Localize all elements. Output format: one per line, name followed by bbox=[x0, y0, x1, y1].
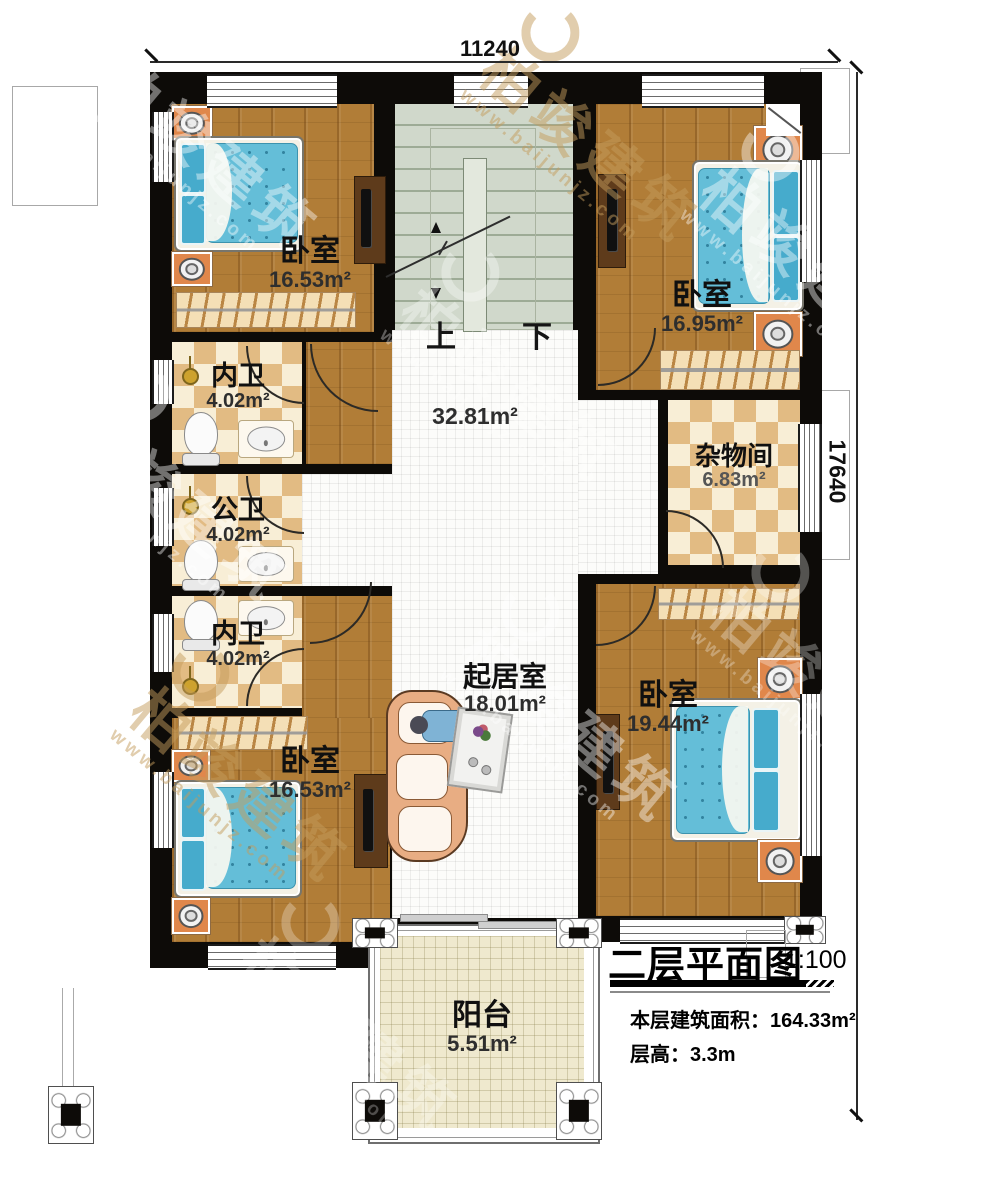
window-left-4 bbox=[152, 614, 174, 672]
label-bedroom-br: 卧室 19.44m² bbox=[598, 680, 738, 736]
sofa-cushion bbox=[396, 754, 448, 800]
room-area: 5.51m² bbox=[382, 1032, 582, 1056]
room-area: 19.44m² bbox=[598, 712, 738, 736]
pillow bbox=[752, 708, 780, 770]
stair-arrow-down bbox=[431, 288, 441, 299]
title-underline-hatch bbox=[806, 980, 834, 987]
toilet-symbol bbox=[184, 412, 218, 456]
hall-band-left bbox=[302, 474, 392, 586]
pillow bbox=[772, 170, 800, 236]
wardrobe bbox=[658, 588, 800, 620]
room-name: 内卫 bbox=[174, 362, 302, 391]
window-left-5 bbox=[152, 772, 174, 848]
label-bedroom-bl: 卧室 16.53m² bbox=[240, 746, 380, 802]
monitor-icon bbox=[603, 731, 613, 793]
porch-post bbox=[48, 1086, 94, 1144]
stair-up-label: 上 bbox=[426, 312, 456, 356]
pillow bbox=[180, 194, 206, 245]
room-area: 4.02m² bbox=[174, 649, 302, 671]
plan-scale: 1:100 bbox=[784, 946, 847, 975]
teacup bbox=[481, 764, 492, 775]
window-left-1 bbox=[152, 112, 174, 182]
room-area: 16.53m² bbox=[240, 778, 380, 802]
sofa-cushion bbox=[398, 806, 452, 852]
nightstand bbox=[172, 106, 212, 140]
room-area: 6.83m² bbox=[670, 470, 798, 492]
title-underline-thin bbox=[610, 991, 830, 993]
room-area: 16.95m² bbox=[632, 312, 772, 336]
balcony-post bbox=[352, 918, 398, 948]
window-right-3 bbox=[800, 694, 822, 856]
room-area: 16.53m² bbox=[240, 268, 380, 292]
label-hall-area: 32.81m² bbox=[400, 404, 550, 429]
watermark-logo-icon bbox=[141, 14, 199, 72]
pillow bbox=[180, 787, 206, 839]
label-living: 起居室 18.01m² bbox=[430, 662, 580, 716]
dimension-width: 11240 bbox=[420, 36, 560, 62]
window-bottom-left bbox=[208, 944, 336, 970]
balcony-post bbox=[556, 918, 602, 948]
balcony-post bbox=[352, 1082, 398, 1140]
nightstand bbox=[758, 840, 802, 882]
room-name: 卧室 bbox=[632, 280, 772, 312]
window-top-3 bbox=[642, 74, 764, 108]
dimension-line-right bbox=[856, 72, 858, 1120]
wall-lamp-icon bbox=[182, 678, 199, 695]
label-bath-top: 内卫 4.02m² bbox=[174, 362, 302, 413]
pillow bbox=[180, 143, 206, 194]
wardrobe bbox=[660, 350, 800, 390]
nightstand bbox=[172, 898, 210, 934]
stair-down-label: 下 bbox=[522, 312, 552, 356]
stair-arrow-up bbox=[431, 222, 441, 233]
sink-symbol bbox=[238, 420, 294, 458]
pillow bbox=[752, 770, 780, 832]
room-name: 卧室 bbox=[598, 680, 738, 712]
label-bath-low: 内卫 4.02m² bbox=[174, 620, 302, 671]
window-right-1 bbox=[800, 160, 822, 282]
window-top-2 bbox=[454, 74, 528, 108]
window-left-3 bbox=[152, 488, 174, 546]
hall-band-right bbox=[578, 400, 658, 574]
room-name: 卧室 bbox=[240, 746, 380, 778]
dimension-height: 17640 bbox=[824, 432, 851, 512]
floor-height-text: 层高：3.3m bbox=[630, 1038, 736, 1067]
room-area: 4.02m² bbox=[174, 391, 302, 413]
flue-notch bbox=[766, 104, 800, 136]
room-name: 卧室 bbox=[240, 236, 380, 268]
desk bbox=[598, 174, 626, 268]
teacup bbox=[468, 757, 479, 768]
window-left-2 bbox=[152, 360, 174, 404]
nightstand bbox=[758, 658, 802, 700]
floor-area-text: 本层建筑面积：164.33m² bbox=[630, 1004, 856, 1033]
nightstand bbox=[172, 750, 210, 782]
label-bedroom-tr: 卧室 16.95m² bbox=[632, 280, 772, 336]
title-underline-thick bbox=[610, 980, 834, 987]
window-right-2 bbox=[798, 424, 822, 532]
label-bedroom-tl: 卧室 16.53m² bbox=[240, 236, 380, 292]
room-area: 32.81m² bbox=[400, 404, 550, 429]
room-area: 18.01m² bbox=[430, 692, 580, 716]
label-balcony: 阳台 5.51m² bbox=[382, 1000, 582, 1056]
window-top-1 bbox=[207, 74, 337, 108]
room-name: 阳台 bbox=[382, 1000, 582, 1032]
coffee-table bbox=[447, 706, 514, 793]
label-storage: 杂物间 6.83m² bbox=[670, 442, 798, 492]
exterior-outline-top-left bbox=[12, 86, 98, 206]
pillow bbox=[180, 839, 206, 891]
room-name: 杂物间 bbox=[670, 442, 798, 470]
monitor-icon bbox=[607, 189, 617, 251]
room-name: 公卫 bbox=[174, 496, 302, 525]
wardrobe bbox=[176, 292, 356, 328]
stair-center-rail bbox=[463, 158, 487, 332]
floor-plan-canvas: 上 下 bbox=[0, 0, 1000, 1188]
balcony-post bbox=[556, 1082, 602, 1140]
room-name: 内卫 bbox=[174, 620, 302, 649]
label-bath-mid: 公卫 4.02m² bbox=[174, 496, 302, 547]
room-name: 起居室 bbox=[430, 662, 580, 692]
sink-symbol bbox=[238, 546, 294, 582]
nightstand bbox=[172, 252, 212, 286]
pillow bbox=[772, 236, 800, 302]
room-area: 4.02m² bbox=[174, 525, 302, 547]
sliding-door-leaf bbox=[400, 914, 488, 922]
flower-vase bbox=[469, 723, 494, 746]
person-head bbox=[410, 716, 428, 734]
